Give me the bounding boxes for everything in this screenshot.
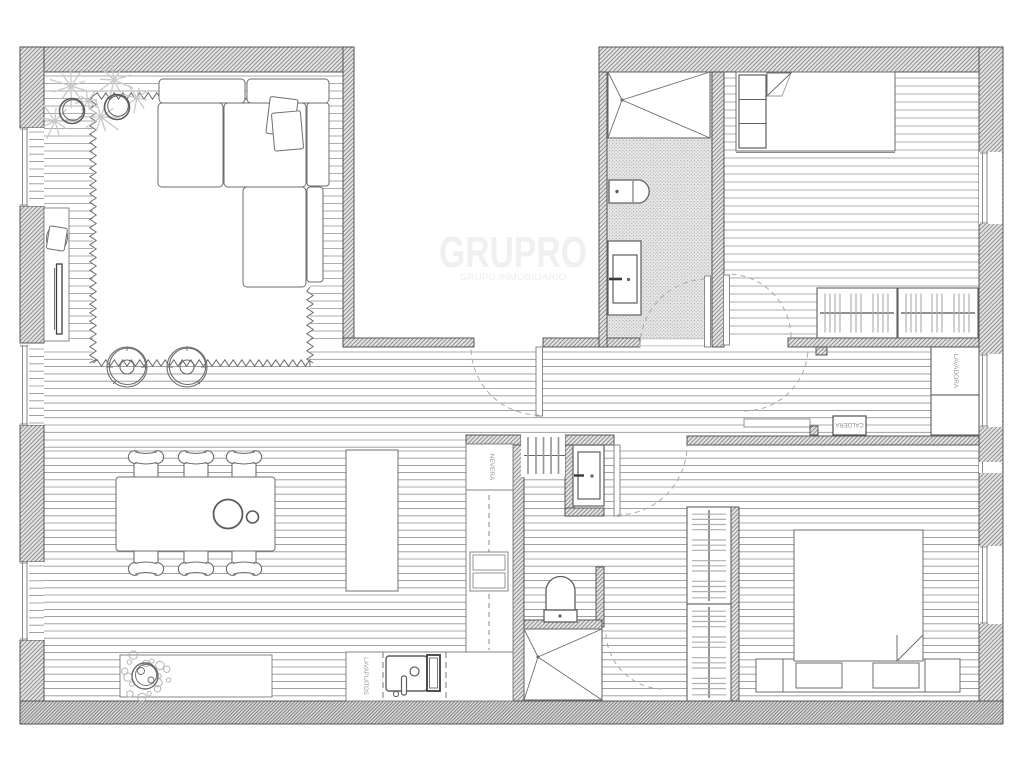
svg-text:CALDERA: CALDERA bbox=[835, 421, 863, 427]
svg-text:NEVERA: NEVERA bbox=[488, 454, 495, 481]
svg-text:LAVAPLATOS: LAVAPLATOS bbox=[362, 657, 368, 695]
svg-text:LAVADORA: LAVADORA bbox=[952, 354, 959, 389]
svg-text:GRUPRO: GRUPRO bbox=[439, 228, 587, 277]
svg-text:GRUPO INMOBILIARIO: GRUPO INMOBILIARIO bbox=[460, 272, 566, 282]
